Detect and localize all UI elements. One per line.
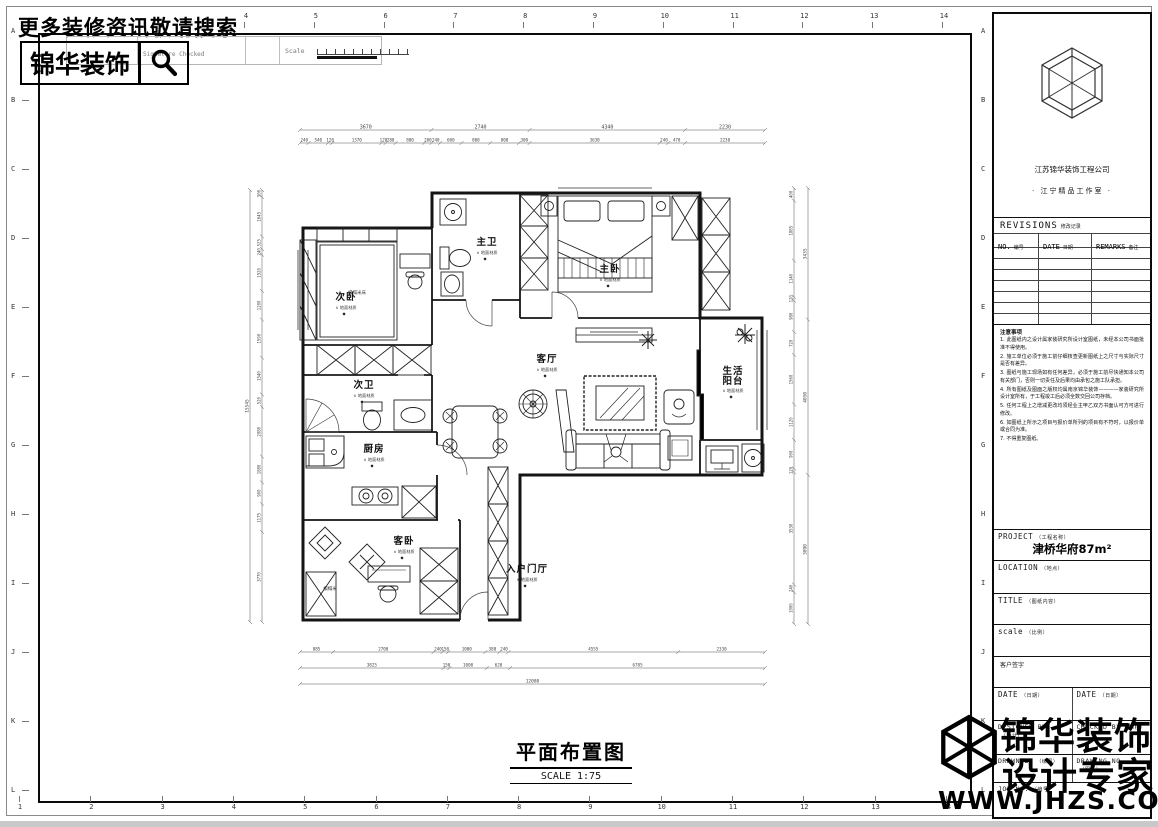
- scale-row-label: scale: [998, 627, 1023, 636]
- sheet-title-label: TITLE: [998, 596, 1023, 605]
- client-sign-section: 客户签字: [994, 656, 1150, 687]
- svg-text:入户门厅: 入户门厅: [505, 563, 548, 575]
- company-cube-logo: [1034, 42, 1110, 126]
- grid-col-label: 13: [868, 12, 880, 20]
- grid-tick: [22, 583, 29, 584]
- floor-marker-icon: ◆: [370, 463, 374, 468]
- dimension-label: 1140: [789, 273, 794, 283]
- location-label: LOCATION: [998, 563, 1038, 572]
- grid-row-label: H: [11, 510, 15, 518]
- grid-tick: [376, 796, 377, 802]
- dimension-label: 120: [326, 138, 334, 143]
- dimension-label: 240: [432, 138, 440, 143]
- grid-tick: [22, 169, 29, 170]
- brand-logo-text: 锦华装饰: [30, 45, 130, 81]
- dimension-label: 300: [257, 189, 262, 197]
- entry-cabinet: [488, 467, 508, 615]
- exterior-walls: [303, 193, 762, 620]
- dimension-label: 540: [314, 138, 322, 143]
- note-item: 2. 施工单位必须于施工前仔细核查更新图纸上之尺寸与实际尺寸是否有差异。: [1000, 354, 1144, 370]
- room-label-客厅: 客厅∧ 地面材质◆: [535, 353, 557, 378]
- grid-row-label: C: [11, 165, 15, 173]
- dim-chain-right-main: 343540503890: [803, 186, 811, 626]
- micro-label: 榻榻米: [323, 585, 337, 592]
- dimension-label: 720: [789, 339, 794, 347]
- grid-tick: [22, 238, 29, 239]
- dimension-label: 1200: [257, 300, 262, 310]
- dimension-label: 120: [789, 295, 794, 303]
- revision-row: [994, 258, 1150, 269]
- dimension-label: 3825: [367, 663, 378, 668]
- dimension-label: 800: [406, 138, 414, 143]
- balcony-fixtures: [706, 324, 764, 472]
- grid-tick: [802, 22, 803, 28]
- dimension-label: 1540: [257, 371, 262, 381]
- dimension-label: 3435: [803, 248, 809, 259]
- grid-row-label: K: [11, 717, 15, 725]
- cad-sheet: 12344556677889910101111121213131414AABBC…: [0, 0, 1158, 821]
- room-note: ∧ 地面材质: [536, 366, 557, 373]
- dim-chain-top-sub: 2405401201370120280800200240600800800300…: [298, 138, 767, 146]
- dimension-label: 1885: [789, 225, 794, 235]
- dimension-label: 1000: [462, 647, 473, 652]
- grid-row-label: F: [11, 372, 15, 380]
- grid-row-label: A: [11, 27, 15, 35]
- dimension-label: 3890: [803, 544, 809, 555]
- scale-label: Scale: [285, 47, 305, 55]
- dimension-label: 885: [313, 647, 321, 652]
- grid-col-label: 10: [659, 12, 671, 20]
- grid-row-label: D: [981, 234, 985, 242]
- grid-tick: [593, 22, 594, 28]
- room-label-客卧: 客卧∧ 地面材质◆: [392, 535, 414, 560]
- dimension-label: 12080: [526, 679, 540, 685]
- svg-text:厨房: 厨房: [363, 443, 384, 455]
- grid-col-label: 9: [589, 12, 601, 20]
- note-item: 5. 任何工程上之增减更改均须经业主甲乙双方书面认可方可进行修改。: [1000, 403, 1144, 419]
- grid-row-label: E: [981, 303, 985, 311]
- grid-row-label: F: [981, 372, 985, 380]
- floor-plan: 3670274043402230240540120137012028080020…: [235, 105, 845, 715]
- floor-marker-icon: ◆: [400, 555, 404, 560]
- grid-tick: [453, 22, 454, 28]
- dimension-label: 380: [489, 647, 497, 652]
- grid-tick: [447, 796, 448, 802]
- grid-col-label: 4: [227, 803, 241, 811]
- watermark-cube-icon: [936, 712, 1002, 784]
- grid-col-label: 11: [729, 12, 741, 20]
- dimension-label: 1120: [789, 417, 794, 427]
- dim-chain-left-sub: 3001645525240152012001590154052020801080…: [257, 188, 265, 624]
- notes-list: 1. 此图纸内之设计属家装研究所设计室图纸，未经本公司书面批准不得使用。2. 施…: [1000, 337, 1144, 444]
- floor-marker-icon: ◆: [360, 399, 364, 404]
- dimension-chains: 3670274043402230240540120137012028080020…: [245, 125, 811, 687]
- studio-name: · 江宁精品工作室 ·: [994, 186, 1150, 196]
- grid-col-label: 11: [726, 803, 740, 811]
- master-bath-fixtures: [440, 199, 471, 296]
- room-note: ∧ 地面材质: [335, 304, 356, 311]
- revisions-title: REVISIONS: [1000, 221, 1058, 231]
- grid-row-label: L: [11, 786, 15, 794]
- grid-col-label: 8: [512, 803, 526, 811]
- second-bedroom-furniture: [300, 228, 431, 375]
- dim-chain-top-main: 3670274043402230: [298, 125, 767, 133]
- note-item: 6. 如图纸上所示之项目与报价单所列的项目有不符时，以报价单或合同为准。: [1000, 420, 1144, 436]
- dimension-label: 525: [257, 239, 262, 247]
- dimension-label: 6785: [633, 663, 644, 668]
- dimension-label: 980: [789, 312, 794, 320]
- grid-tick: [875, 796, 876, 802]
- dimension-label: 600: [447, 138, 455, 143]
- grid-tick: [22, 721, 29, 722]
- title-block-panel: 江苏锦华装饰工程公司 · 江宁精品工作室 · REVISIONS 修改记录 NO…: [992, 12, 1152, 819]
- scale-bar-solid: [317, 56, 377, 59]
- grid-tick: [22, 376, 29, 377]
- grid-tick: [162, 796, 163, 802]
- notes-title: 注意事项: [1000, 328, 1144, 336]
- grid-col-label: 13: [869, 803, 883, 811]
- grid-tick: [589, 796, 590, 802]
- grid-col-label: 5: [310, 12, 322, 20]
- notes-section: 注意事项 1. 此图纸内之设计属家装研究所设计室图纸，未经本公司书面批准不得使用…: [994, 324, 1150, 529]
- grid-row-label: D: [11, 234, 15, 242]
- room-label-生活阳台: 生活阳台∧ 地面材质◆: [722, 365, 743, 399]
- dimension-label: 15545: [245, 399, 251, 413]
- grid-col-label: 1: [13, 803, 27, 811]
- grid-tick: [244, 22, 245, 28]
- dimension-label: 1080: [257, 464, 262, 474]
- interior-walls: [303, 193, 762, 620]
- plan-title-block: 平面布置图 SCALE 1:75: [510, 736, 632, 784]
- grid-tick: [733, 22, 734, 28]
- scale-bar-ticks: [317, 49, 409, 55]
- grid-tick: [523, 22, 524, 28]
- grid-tick: [19, 796, 20, 802]
- svg-text:客卧: 客卧: [392, 535, 414, 547]
- grid-tick: [663, 22, 664, 28]
- grid-tick: [22, 652, 29, 653]
- grid-row-label: I: [11, 579, 15, 587]
- grid-tick: [314, 22, 315, 28]
- dimension-label: 150: [442, 647, 450, 652]
- dimension-label: 1645: [257, 211, 262, 221]
- grid-col-label: 12: [797, 803, 811, 811]
- grid-row-label: I: [981, 579, 985, 587]
- revision-row: [994, 280, 1150, 291]
- dimension-label: 240: [257, 248, 262, 256]
- grid-tick: [732, 796, 733, 802]
- grid-row-label: J: [11, 648, 15, 656]
- dimension-label: 900: [789, 450, 794, 458]
- strip-divider: [245, 37, 246, 64]
- grid-row-label: B: [981, 96, 985, 104]
- dimension-label: 3630: [590, 138, 601, 143]
- dim-chain-right-sub: 4001885114012098072015601120900120353024…: [789, 186, 797, 626]
- project-value: 津桥华府87m²: [994, 541, 1150, 557]
- revision-row: [994, 313, 1150, 324]
- dimension-label: 4340: [601, 125, 613, 131]
- dimension-label: 470: [673, 138, 681, 143]
- dimension-label: 240: [789, 584, 794, 592]
- dimension-label: 800: [472, 138, 480, 143]
- grid-col-label: 2: [84, 803, 98, 811]
- grid-col-label: 7: [449, 12, 461, 20]
- grid-col-label: 9: [583, 803, 597, 811]
- location-section: LOCATION（地点）: [994, 560, 1150, 593]
- dimension-label: 120: [789, 466, 794, 474]
- dimension-label: 2740: [475, 125, 487, 131]
- dimension-label: 4555: [588, 647, 599, 652]
- dimension-label: 620: [495, 663, 503, 668]
- sheet-title-section: TITLE（图纸内容）: [994, 593, 1150, 624]
- grid-row-label: G: [11, 441, 15, 449]
- svg-text:主卫: 主卫: [476, 236, 497, 248]
- dim-chain-bottom-3: 12080: [298, 679, 767, 687]
- dimension-label: 2330: [717, 647, 728, 652]
- room-label-主卫: 主卫∧ 地面材质◆: [476, 236, 497, 261]
- dimension-label: 200: [424, 138, 432, 143]
- revision-row: [994, 269, 1150, 280]
- grid-tick: [803, 796, 804, 802]
- dimension-label: 2230: [719, 125, 731, 131]
- grid-row-label: H: [981, 510, 985, 518]
- dimension-label: 2080: [257, 426, 262, 436]
- dimension-label: 1590: [257, 333, 262, 343]
- sliding-door: [697, 350, 704, 440]
- date-right-label: DATE: [1077, 690, 1097, 699]
- search-icon-box: [139, 41, 189, 85]
- client-sign-label: 客户签字: [994, 657, 1150, 669]
- dimension-label: 1000: [463, 663, 474, 668]
- floor-marker-icon: ◆: [729, 394, 733, 399]
- grid-tick: [90, 796, 91, 802]
- logo-section: 江苏锦华装饰工程公司 · 江宁精品工作室 ·: [994, 14, 1150, 217]
- second-bath-fixtures: [362, 400, 432, 430]
- micro-label: 榻榻米床: [348, 289, 366, 296]
- grid-row-label: B: [11, 96, 15, 104]
- room-note: ∧ 地面材质: [599, 276, 620, 283]
- room-note: ∧ 地面材质: [722, 387, 743, 394]
- svg-text:客厅: 客厅: [535, 353, 557, 365]
- dimension-label: 2700: [378, 647, 389, 652]
- grid-col-label: 7: [441, 803, 455, 811]
- note-item: 4. 所有图纸及图面之版权均属南京锦华装饰————家装研究所设计室所有，于工程竣…: [1000, 387, 1144, 403]
- dimension-label: 3530: [789, 523, 794, 533]
- floor-marker-icon: ◆: [483, 256, 487, 261]
- floor-marker-icon: ◆: [543, 373, 547, 378]
- grid-tick: [304, 796, 305, 802]
- project-label: PROJECT: [998, 532, 1033, 541]
- revision-row: [994, 291, 1150, 302]
- grid-tick: [872, 22, 873, 28]
- strip-divider: [279, 37, 280, 64]
- dimension-label: 800: [501, 138, 509, 143]
- dimension-label: 1560: [789, 374, 794, 384]
- grid-col-label: 14: [938, 12, 950, 20]
- grid-col-label: 8: [519, 12, 531, 20]
- grid-tick: [661, 796, 662, 802]
- grid-tick: [22, 790, 29, 791]
- dimension-label: 400: [789, 190, 794, 198]
- search-icon: [149, 48, 179, 78]
- floor-marker-icon: ◆: [342, 311, 346, 316]
- dimension-label: 1370: [352, 138, 363, 143]
- brand-box: 锦华装饰: [20, 41, 140, 85]
- room-label-次卫: 次卫∧ 地面材质◆: [353, 379, 374, 404]
- dimension-label: 3770: [257, 572, 262, 582]
- note-item: 3. 图纸与施工现场如有任何差异，必须于施工前尽快通知本公司有关部门，否则一切责…: [1000, 370, 1144, 386]
- room-note: ∧ 地面材质: [353, 392, 374, 399]
- dimension-label: 3670: [360, 125, 372, 131]
- living-room-furniture: [443, 328, 694, 470]
- grid-tick: [942, 22, 943, 28]
- grid-col-label: 6: [380, 12, 392, 20]
- dimension-label: 240: [301, 138, 309, 143]
- grid-tick: [22, 100, 29, 101]
- dimension-label: 4050: [803, 392, 809, 403]
- dim-chain-bottom-1: 8852700240150100038024045552330: [298, 647, 767, 655]
- dimension-label: 520: [257, 396, 262, 404]
- svg-text:主卧: 主卧: [599, 263, 620, 275]
- dimension-label: 280: [387, 138, 395, 143]
- watermark-url: WWW.JHZS.COM: [938, 786, 1158, 815]
- grid-col-label: 10: [655, 803, 669, 811]
- grid-row-label: J: [981, 648, 985, 656]
- grid-row-label: C: [981, 165, 985, 173]
- dimension-label: 1520: [257, 267, 262, 277]
- grid-row-label: G: [981, 441, 985, 449]
- dimension-label: 2230: [720, 138, 731, 143]
- room-label-入户门厅: 入户门厅∧ 地面材质◆: [505, 563, 548, 588]
- dimension-label: 240: [500, 647, 508, 652]
- note-item: 1. 此图纸内之设计属家装研究所设计室图纸，未经本公司书面批准不得使用。: [1000, 337, 1144, 353]
- room-label-厨房: 厨房∧ 地面材质◆: [363, 443, 384, 468]
- floor-marker-icon: ◆: [523, 583, 527, 588]
- room-note: ∧ 地面材质: [363, 456, 384, 463]
- svg-text:生活阳台: 生活阳台: [722, 365, 743, 387]
- note-item: 7. 不得重复图纸。: [1000, 436, 1144, 444]
- project-section: PROJECT（工程名称） 津桥华府87m²: [994, 529, 1150, 560]
- guest-bedroom-furniture: [306, 527, 458, 616]
- grid-tick: [233, 796, 234, 802]
- grid-col-label: 12: [798, 12, 810, 20]
- company-name: 江苏锦华装饰工程公司: [994, 164, 1150, 175]
- grid-tick: [518, 796, 519, 802]
- dimension-label: 1000: [789, 603, 794, 613]
- grid-tick: [22, 307, 29, 308]
- grid-tick: [384, 22, 385, 28]
- grid-col-label: 3: [156, 803, 170, 811]
- date-left-label: DATE: [998, 690, 1018, 699]
- dimension-label: 1175: [257, 513, 262, 523]
- grid-row-label: A: [981, 27, 985, 35]
- dimension-label: 240: [660, 138, 668, 143]
- grid-row-label: E: [11, 303, 15, 311]
- grid-col-label: 5: [298, 803, 312, 811]
- revisions-title-cn: 修改记录: [1061, 223, 1081, 230]
- grid-col-label: 4: [240, 12, 252, 20]
- room-note: ∧ 地面材质: [393, 548, 414, 555]
- revision-row: [994, 247, 1150, 258]
- grid-col-label: 6: [370, 803, 384, 811]
- dim-chain-left-main: 15545: [245, 188, 253, 624]
- dimension-label: 300: [520, 138, 528, 143]
- revision-row: [994, 302, 1150, 313]
- grid-tick: [22, 445, 29, 446]
- plan-scale: SCALE 1:75: [510, 770, 632, 784]
- room-note: ∧ 地面材质: [476, 249, 497, 256]
- revisions-empty-rows: [994, 247, 1150, 324]
- plan-title: 平面布置图: [510, 736, 632, 769]
- dimension-label: 150: [443, 663, 451, 668]
- scale-section: scale（比例）: [994, 624, 1150, 656]
- room-note: ∧ 地面材质: [516, 576, 537, 583]
- svg-text:次卫: 次卫: [353, 379, 374, 391]
- dim-chain-bottom-2: 382515010006206785: [298, 663, 767, 671]
- revisions-section: REVISIONS 修改记录 NO.编号 DATE日期 REMARKS备注: [994, 217, 1150, 324]
- grid-tick: [22, 514, 29, 515]
- dimension-label: 900: [257, 489, 262, 497]
